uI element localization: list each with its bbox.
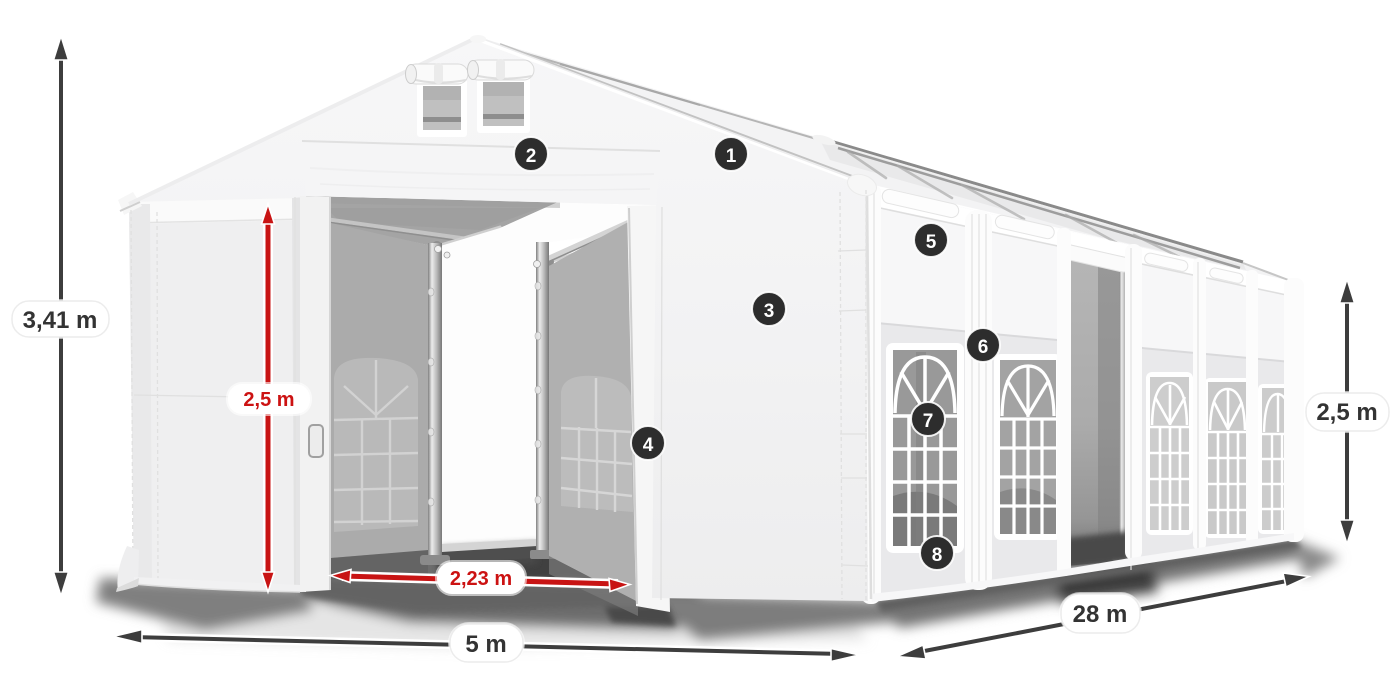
svg-text:28 m: 28 m xyxy=(1073,601,1128,628)
svg-text:2,5 m: 2,5 m xyxy=(1316,399,1377,426)
svg-text:5: 5 xyxy=(926,232,937,253)
svg-text:2,23 m: 2,23 m xyxy=(450,568,512,590)
svg-text:4: 4 xyxy=(643,435,654,456)
svg-text:5 m: 5 m xyxy=(465,631,506,658)
svg-text:7: 7 xyxy=(923,411,934,432)
svg-text:1: 1 xyxy=(726,146,737,167)
svg-text:2: 2 xyxy=(526,146,537,167)
svg-text:8: 8 xyxy=(932,545,943,566)
svg-text:3: 3 xyxy=(764,301,775,322)
svg-text:6: 6 xyxy=(978,337,989,358)
svg-text:3,41 m: 3,41 m xyxy=(23,307,98,334)
svg-text:2,5 m: 2,5 m xyxy=(243,389,294,411)
